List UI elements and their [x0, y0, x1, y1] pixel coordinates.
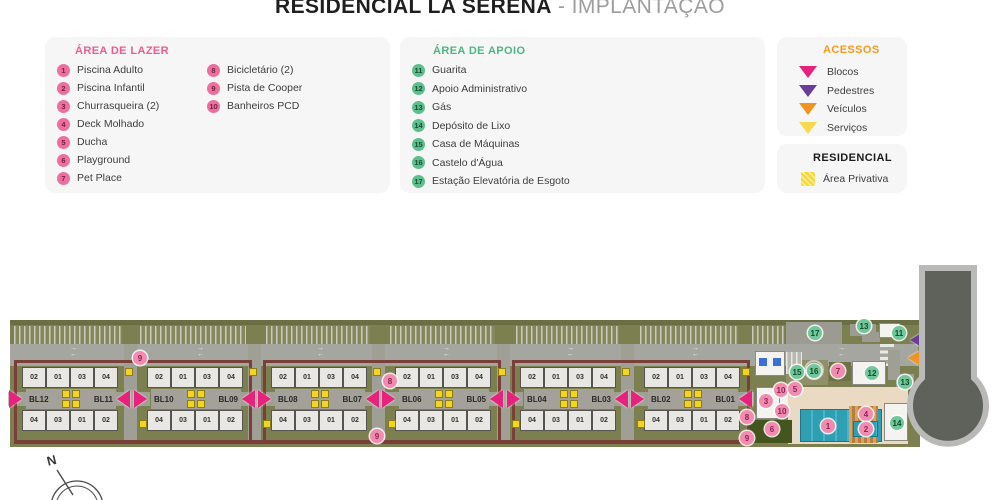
unit-cell-top: 02	[520, 367, 544, 388]
map-badge-12: 12	[865, 366, 879, 380]
block-label-BL12: BL12	[29, 395, 49, 404]
unit-cell-bottom: 04	[271, 410, 295, 431]
private-area-square-icon	[570, 400, 578, 408]
private-area-square-icon	[570, 390, 578, 398]
private-area-square-icon	[560, 400, 568, 408]
private-area-square-icon	[72, 400, 80, 408]
unit-cell-top: 02	[644, 367, 668, 388]
map-badge-8: 8	[383, 374, 397, 388]
block-label-BL05: BL05	[466, 395, 486, 404]
map-badge-8: 8	[740, 410, 754, 424]
road-direction-arrows: → ←	[443, 346, 450, 357]
private-area-square-icon	[445, 400, 453, 408]
block-access-triangle-icon	[9, 390, 22, 408]
block-label-BL03: BL03	[591, 395, 611, 404]
private-area-corner-icon	[388, 420, 396, 428]
parking-stalls	[640, 326, 738, 344]
cooper-track-bottom	[14, 440, 752, 444]
private-area-corner-icon	[498, 368, 506, 376]
road-direction-arrows: → ←	[197, 346, 204, 357]
unit-cell-top: 03	[319, 367, 343, 388]
unit-cell-top: 04	[467, 367, 491, 388]
unit-cell-bottom: 01	[195, 410, 219, 431]
unit-cell-bottom: 04	[395, 410, 419, 431]
unit-cell-bottom: 04	[147, 410, 171, 431]
unit-cell-bottom: 02	[467, 410, 491, 431]
block-access-triangle-icon	[117, 390, 130, 408]
unit-cell-top: 04	[343, 367, 367, 388]
block-access-triangle-icon	[490, 390, 503, 408]
map-badge-1: 1	[821, 419, 835, 433]
private-area-square-icon	[62, 390, 70, 398]
private-area-square-icon	[684, 390, 692, 398]
unit-cell-top: 01	[295, 367, 319, 388]
private-area-corner-icon	[249, 368, 257, 376]
block-label-BL01: BL01	[715, 395, 735, 404]
block-midband-BL08-BL07: BL08BL07	[275, 389, 365, 409]
block-label-BL11: BL11	[94, 395, 113, 404]
block-midband-BL12-BL11: BL12BL11	[26, 389, 116, 409]
block-access-triangle-icon	[134, 390, 147, 408]
block-midband-BL10-BL09: BL10BL09	[151, 389, 241, 409]
parking-stalls	[140, 326, 246, 344]
unit-cell-bottom: 03	[46, 410, 70, 431]
accessible-spot-icon	[759, 358, 767, 366]
block-access-triangle-icon	[366, 390, 379, 408]
road-direction-arrows: → ←	[317, 346, 324, 357]
block-label-BL10: BL10	[154, 395, 174, 404]
parking-stalls	[266, 326, 370, 344]
unit-cell-bottom: 02	[716, 410, 740, 431]
unit-cell-top: 01	[544, 367, 568, 388]
unit-cell-top: 04	[592, 367, 616, 388]
private-area-squares	[435, 390, 453, 408]
map-badge-15: 15	[790, 365, 804, 379]
map-badge-2: 2	[859, 422, 873, 436]
block-access-triangle-icon	[615, 390, 628, 408]
road-direction-arrows: → ←	[70, 346, 77, 357]
block-label-BL08: BL08	[278, 395, 298, 404]
private-area-corner-icon	[139, 420, 147, 428]
unit-cell-top: 03	[568, 367, 592, 388]
unit-cell-bottom: 03	[295, 410, 319, 431]
block-midband-BL04-BL03: BL04BL03	[524, 389, 614, 409]
unit-cell-top: 02	[22, 367, 46, 388]
block-access-triangle-icon	[242, 390, 255, 408]
block-label-BL07: BL07	[342, 395, 362, 404]
parking-stalls	[516, 326, 619, 344]
map-badge-3: 3	[759, 394, 773, 408]
unit-cell-top: 04	[219, 367, 243, 388]
unit-cell-top: 01	[668, 367, 692, 388]
unit-cell-bottom: 02	[94, 410, 118, 431]
private-area-square-icon	[62, 400, 70, 408]
private-area-corner-icon	[373, 368, 381, 376]
map-badge-4: 4	[859, 407, 873, 421]
map-badge-10: 10	[774, 383, 788, 397]
private-area-square-icon	[435, 400, 443, 408]
private-area-corner-icon	[742, 368, 750, 376]
guarita-approach	[862, 332, 880, 342]
map-badge-9: 9	[740, 431, 754, 445]
private-area-corner-icon	[125, 368, 133, 376]
map-badge-16: 16	[807, 364, 821, 378]
map-badge-9: 9	[133, 351, 147, 365]
map-badge-9: 9	[370, 429, 384, 443]
block-label-BL06: BL06	[402, 395, 422, 404]
map-badge-7: 7	[831, 364, 845, 378]
unit-cell-top: 03	[70, 367, 94, 388]
unit-cell-bottom: 04	[520, 410, 544, 431]
plan-top-border	[10, 320, 920, 325]
block-access-triangle-icon	[382, 390, 395, 408]
map-badge-13: 13	[857, 319, 871, 333]
private-area-square-icon	[197, 390, 205, 398]
private-area-square-icon	[321, 390, 329, 398]
block-access-triangle-icon	[507, 390, 520, 408]
private-area-squares	[62, 390, 80, 408]
unit-cell-top: 02	[395, 367, 419, 388]
unit-cell-top: 03	[443, 367, 467, 388]
block-label-BL02: BL02	[651, 395, 671, 404]
private-area-squares	[684, 390, 702, 408]
compass-north-label: N	[45, 452, 58, 469]
unit-cell-bottom: 04	[644, 410, 668, 431]
block-access-triangle-icon	[631, 390, 644, 408]
private-area-squares	[311, 390, 329, 408]
block-midband-BL02-BL01: BL02BL01	[648, 389, 738, 409]
site-plan-page: RESIDENCIAL LA SERENA - IMPLANTAÇÃO ÁREA…	[0, 0, 1000, 500]
map-badge-6: 6	[765, 422, 779, 436]
private-area-square-icon	[187, 390, 195, 398]
unit-cell-bottom: 02	[343, 410, 367, 431]
accessible-spot-icon	[773, 358, 781, 366]
entrance-road	[895, 260, 1000, 460]
block-access-triangle-icon	[739, 390, 752, 408]
unit-cell-bottom: 01	[319, 410, 343, 431]
unit-cell-bottom: 03	[668, 410, 692, 431]
private-area-square-icon	[694, 390, 702, 398]
parking-stalls	[14, 326, 122, 344]
map-badge-5: 5	[788, 382, 802, 396]
private-area-corner-icon	[263, 420, 271, 428]
block-label-BL09: BL09	[218, 395, 238, 404]
road-direction-arrows: → ←	[692, 346, 699, 357]
block-access-triangle-icon	[258, 390, 271, 408]
private-area-square-icon	[197, 400, 205, 408]
private-area-square-icon	[187, 400, 195, 408]
unit-cell-top: 01	[171, 367, 195, 388]
parking-stalls	[752, 326, 784, 344]
unit-cell-bottom: 01	[70, 410, 94, 431]
unit-cell-top: 04	[94, 367, 118, 388]
private-area-square-icon	[684, 400, 692, 408]
unit-cell-top: 04	[716, 367, 740, 388]
private-area-square-icon	[694, 400, 702, 408]
unit-cell-bottom: 01	[692, 410, 716, 431]
road-direction-arrows: → ←	[567, 346, 574, 357]
private-area-square-icon	[311, 400, 319, 408]
private-area-square-icon	[311, 390, 319, 398]
unit-cell-top: 01	[46, 367, 70, 388]
private-area-square-icon	[72, 390, 80, 398]
unit-cell-top: 03	[692, 367, 716, 388]
unit-cell-bottom: 02	[592, 410, 616, 431]
unit-cell-top: 02	[271, 367, 295, 388]
private-area-square-icon	[560, 390, 568, 398]
unit-cell-top: 01	[419, 367, 443, 388]
private-area-square-icon	[435, 390, 443, 398]
map-badge-17: 17	[808, 326, 822, 340]
unit-cell-top: 03	[195, 367, 219, 388]
unit-cell-bottom: 03	[544, 410, 568, 431]
private-area-corner-icon	[622, 368, 630, 376]
unit-cell-bottom: 01	[568, 410, 592, 431]
map-badge-10: 10	[775, 404, 789, 418]
parking-stalls	[390, 326, 495, 344]
block-midband-BL06-BL05: BL06BL05	[399, 389, 489, 409]
unit-cell-bottom: 02	[219, 410, 243, 431]
unit-cell-bottom: 03	[171, 410, 195, 431]
unit-cell-bottom: 04	[22, 410, 46, 431]
private-area-corner-icon	[512, 420, 520, 428]
private-area-square-icon	[445, 390, 453, 398]
private-area-corner-icon	[637, 420, 645, 428]
private-area-squares	[560, 390, 578, 408]
site-plan-map: → ←→ ←→ ←→ ←→ ←→ ←→ ←0201030404030102BL1…	[0, 0, 1000, 500]
unit-cell-bottom: 01	[443, 410, 467, 431]
road-direction-arrows: → ←	[838, 346, 845, 357]
unit-cell-top: 02	[147, 367, 171, 388]
unit-cell-bottom: 03	[419, 410, 443, 431]
private-area-square-icon	[321, 400, 329, 408]
block-label-BL04: BL04	[527, 395, 547, 404]
compass-rose: N	[35, 445, 115, 500]
private-area-squares	[187, 390, 205, 408]
